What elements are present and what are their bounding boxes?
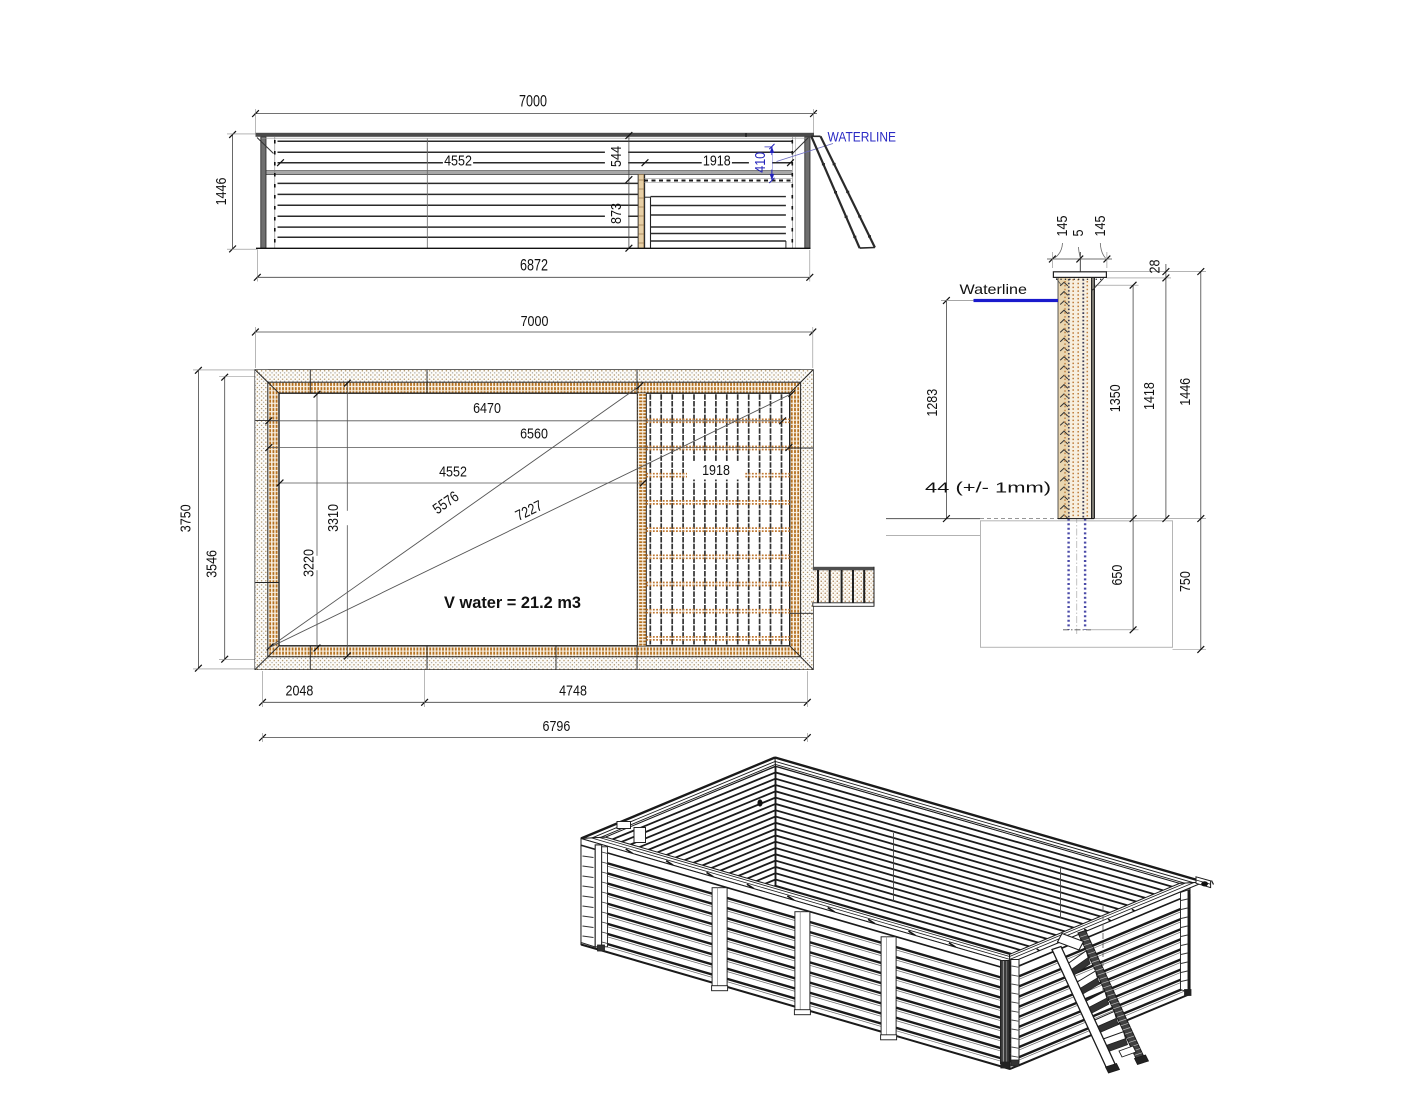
svg-text:3310: 3310 <box>325 504 342 532</box>
svg-text:3750: 3750 <box>178 504 195 532</box>
svg-text:145: 145 <box>1054 216 1071 237</box>
svg-text:410: 410 <box>752 152 769 173</box>
svg-text:6872: 6872 <box>520 256 548 274</box>
svg-text:544: 544 <box>608 146 625 167</box>
svg-text:28: 28 <box>1146 260 1163 274</box>
svg-text:Waterline: Waterline <box>960 281 1028 297</box>
svg-text:750: 750 <box>1177 571 1194 592</box>
svg-text:4552: 4552 <box>444 153 472 170</box>
svg-text:5: 5 <box>1070 230 1087 237</box>
svg-text:1446: 1446 <box>1177 378 1194 406</box>
svg-text:145: 145 <box>1092 216 1109 237</box>
svg-text:2048: 2048 <box>286 682 314 699</box>
svg-text:873: 873 <box>608 203 625 224</box>
svg-text:6470: 6470 <box>473 400 501 417</box>
svg-text:V water = 21.2 m3: V water = 21.2 m3 <box>444 594 581 612</box>
svg-text:1283: 1283 <box>924 389 941 417</box>
svg-text:1918: 1918 <box>702 462 730 479</box>
svg-text:6796: 6796 <box>543 718 571 735</box>
svg-text:1918: 1918 <box>703 153 731 170</box>
svg-text:4552: 4552 <box>439 463 467 480</box>
svg-text:1418: 1418 <box>1141 382 1158 410</box>
svg-text:1446: 1446 <box>213 178 230 206</box>
svg-text:6560: 6560 <box>520 426 548 443</box>
svg-text:7000: 7000 <box>519 93 547 111</box>
svg-text:WATERLINE: WATERLINE <box>828 128 897 144</box>
svg-text:3546: 3546 <box>203 550 220 578</box>
svg-text:1350: 1350 <box>1107 384 1124 412</box>
svg-text:4748: 4748 <box>559 682 587 699</box>
svg-text:3220: 3220 <box>300 549 317 577</box>
svg-text:7000: 7000 <box>521 313 549 330</box>
svg-text:650: 650 <box>1109 565 1126 586</box>
svg-text:44 (+/- 1mm): 44 (+/- 1mm) <box>925 480 1051 497</box>
